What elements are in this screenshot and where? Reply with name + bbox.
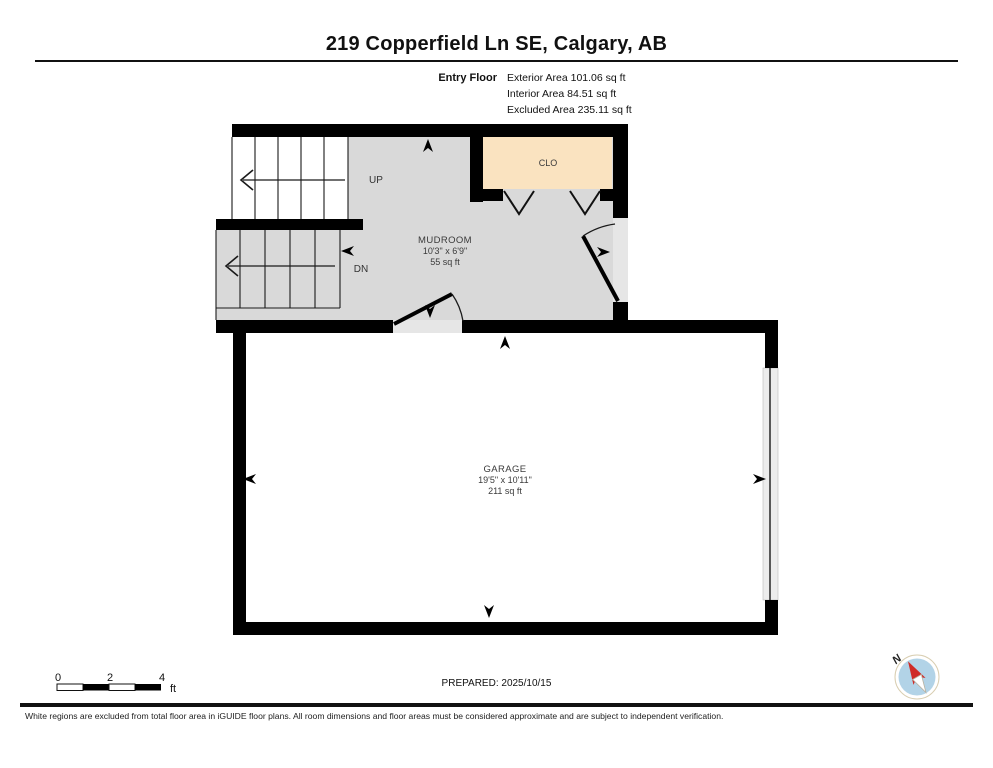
garage-bottom-wall: [233, 622, 778, 635]
top-wall: [232, 124, 628, 137]
mudroom-dims: 10'3" x 6'9": [423, 246, 467, 256]
garage-right-wall-bottom: [765, 600, 778, 635]
garage-top-wall-right: [462, 320, 778, 333]
right-wall-upper: [613, 137, 628, 218]
compass-icon: N: [890, 652, 939, 699]
page-title: 219 Copperfield Ln SE, Calgary, AB: [0, 33, 993, 56]
garage-doorway-threshold: [393, 320, 462, 333]
down-label: DN: [354, 264, 368, 275]
garage-dims: 19'5" x 10'11": [478, 475, 532, 485]
mudroom-label: MUDROOM: [418, 235, 472, 246]
title-divider: [35, 60, 958, 62]
area-stats: Exterior Area 101.06 sq ft Interior Area…: [507, 70, 632, 118]
closet-label: CLO: [539, 158, 558, 168]
garage-label: GARAGE: [483, 464, 526, 475]
garage-area: 211 sq ft: [488, 486, 522, 496]
mudroom-area: 55 sq ft: [430, 257, 460, 267]
stairs-divider-wall: [216, 219, 363, 230]
footer-disclaimer: White regions are excluded from total fl…: [25, 711, 975, 721]
garage-right-wall-top: [765, 320, 778, 368]
closet-door-stub-left: [470, 189, 503, 201]
floor-summary: Entry Floor Exterior Area 101.06 sq ft I…: [0, 70, 993, 118]
floor-name: Entry Floor: [0, 70, 497, 118]
floorplan-page: CLO UP DN MUDROOM 10'3" x 6'9" 55 sq ft …: [0, 0, 993, 768]
up-label: UP: [369, 175, 383, 186]
exterior-area: Exterior Area 101.06 sq ft: [507, 70, 632, 86]
upper-stairs-floor: [232, 137, 348, 219]
garage-left-wall: [233, 320, 246, 635]
prepared-date: PREPARED: 2025/10/15: [0, 678, 993, 689]
entry-doorway-threshold: [613, 218, 628, 302]
footer-divider: [20, 703, 973, 707]
excluded-area: Excluded Area 235.11 sq ft: [507, 102, 632, 118]
interior-area: Interior Area 84.51 sq ft: [507, 86, 632, 102]
